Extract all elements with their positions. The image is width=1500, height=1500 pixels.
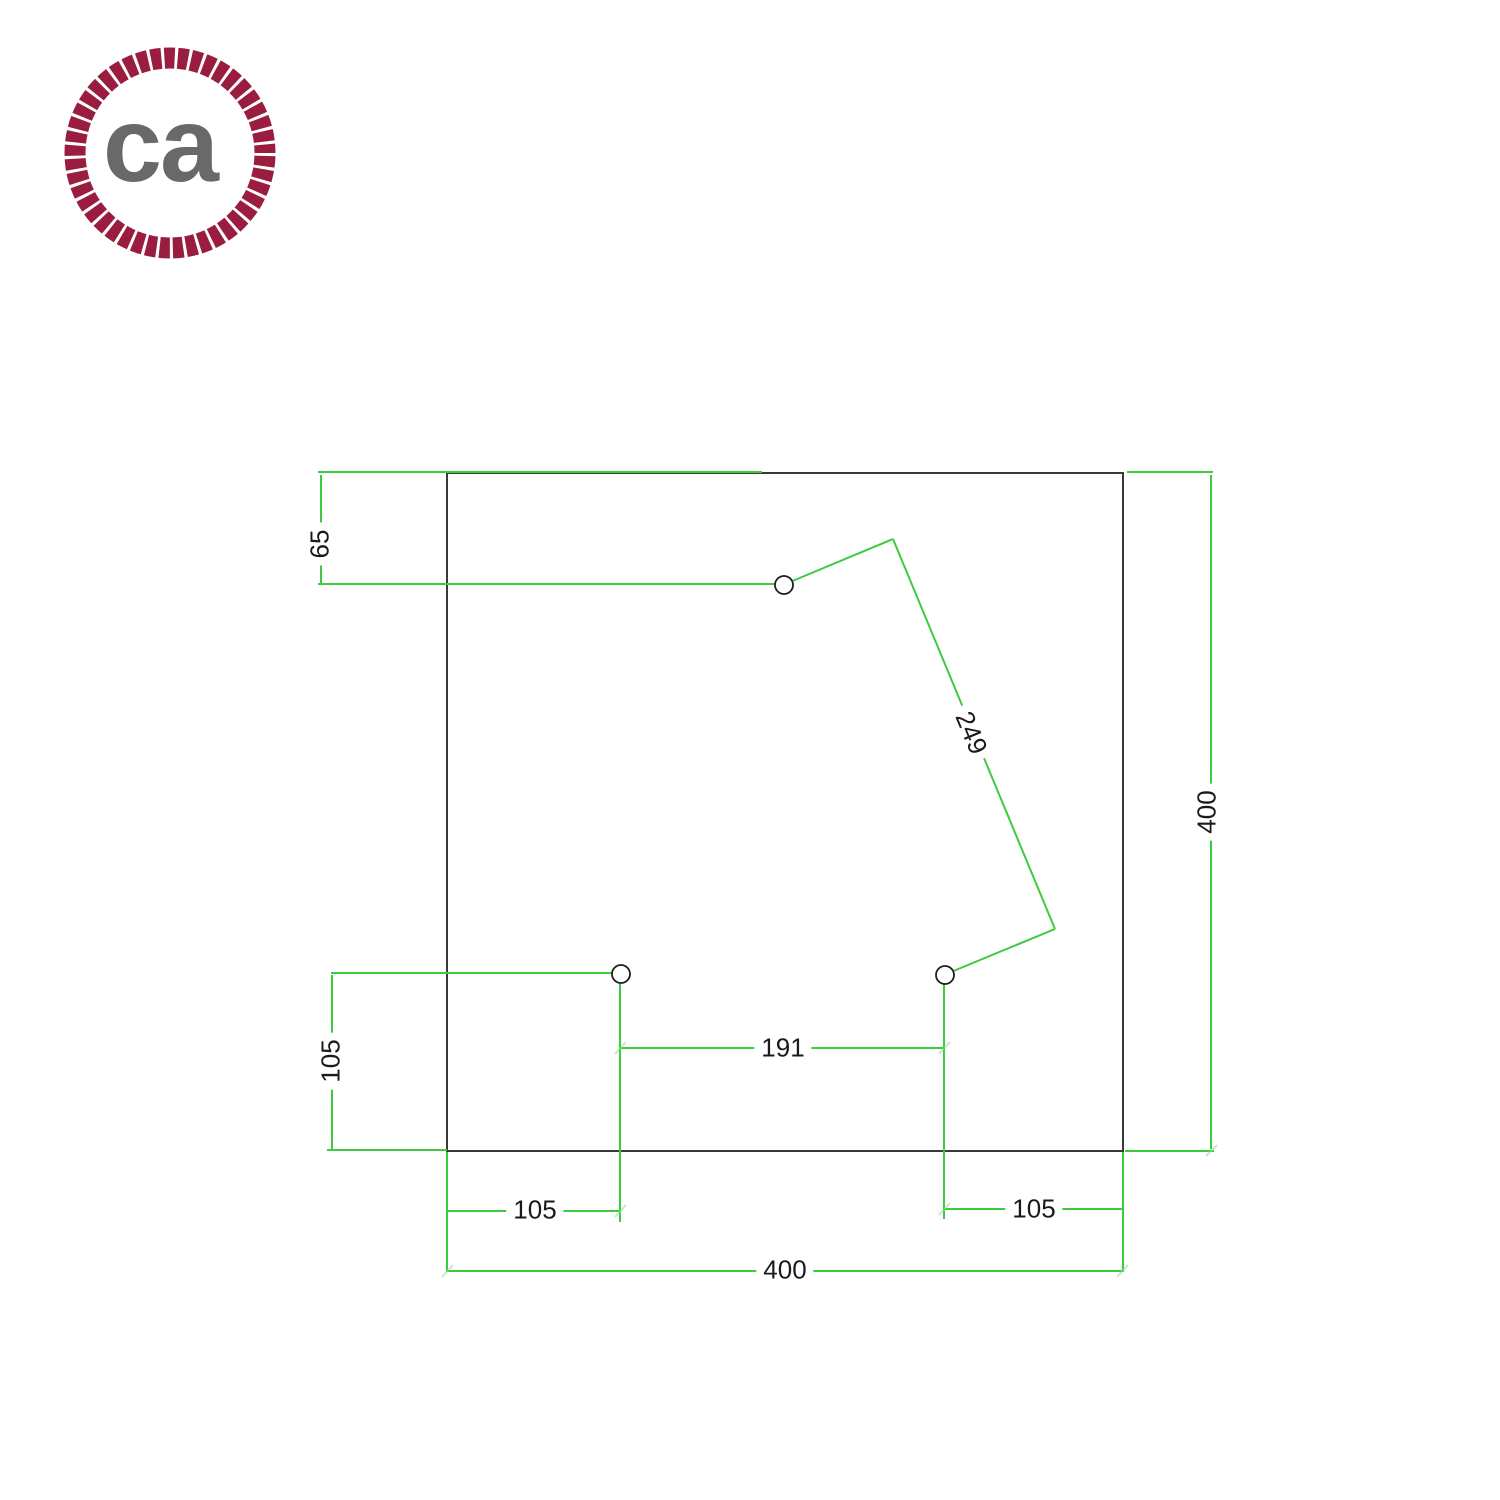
dim-label-bottom-width: 400 (756, 1256, 813, 1283)
technical-drawing (0, 0, 1500, 1500)
hole-bottom-right (936, 966, 954, 984)
dim-label-left-offset: 105 (317, 1032, 344, 1089)
hole-top (775, 576, 793, 594)
dim-label-bottom-center-span: 191 (754, 1034, 811, 1061)
page-canvas: ca (0, 0, 1500, 1500)
dim-label-right-height: 400 (1193, 783, 1220, 840)
dim-label-top-offset: 65 (306, 523, 333, 566)
dimension-ticks (442, 1042, 1217, 1277)
mounting-holes (612, 576, 954, 984)
hole-bottom-left (612, 965, 630, 983)
dim-label-bottom-left-offset: 105 (506, 1196, 563, 1223)
dim-label-bottom-right-offset: 105 (1005, 1195, 1062, 1222)
